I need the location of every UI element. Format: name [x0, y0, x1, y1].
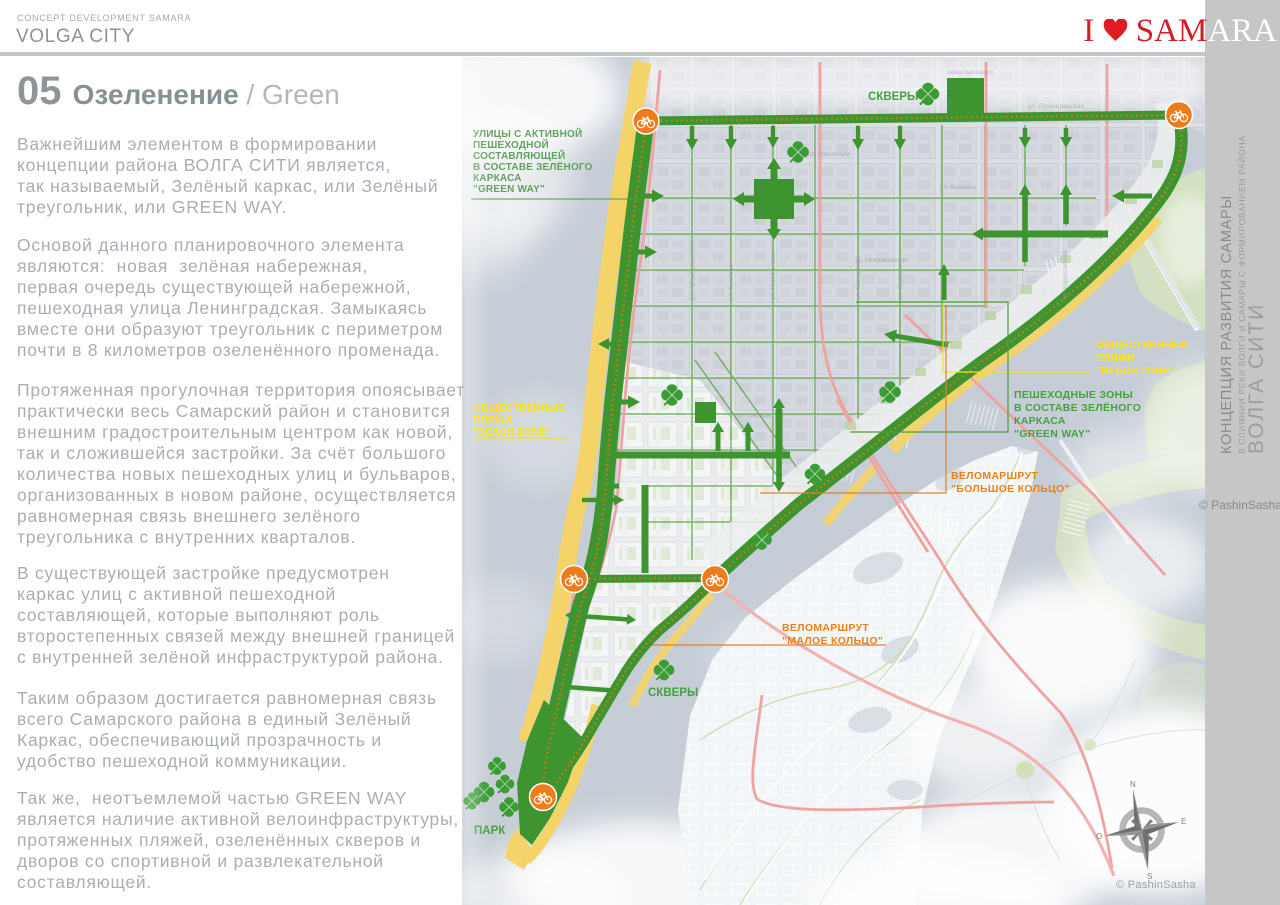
svg-text:ПЕШЕХОДНОЙ: ПЕШЕХОДНОЙ — [473, 138, 549, 151]
svg-text:"GREEN WAY": "GREEN WAY" — [1014, 428, 1090, 440]
svg-text:сквер Высоцкого: сквер Высоцкого — [947, 70, 994, 76]
svg-text:ОБЩЕСТВЕННЫЕ: ОБЩЕСТВЕННЫЕ — [473, 403, 565, 414]
svg-text:"МАЛОЕ КОЛЬЦО": "МАЛОЕ КОЛЬЦО" — [782, 635, 883, 647]
svg-text:пр. Коростелёва: пр. Коростелёва — [1062, 250, 1069, 300]
svg-text:УЛИЦЫ С АКТИВНОЙ: УЛИЦЫ С АКТИВНОЙ — [473, 127, 582, 140]
svg-text:ул. Никитинская: ул. Никитинская — [770, 251, 777, 300]
svg-text:ПЕШЕХОДНЫЕ ЗОНЫ: ПЕШЕХОДНЫЕ ЗОНЫ — [1014, 389, 1133, 401]
svg-text:ул. Ленинградская: ул. Ленинградская — [1028, 103, 1084, 110]
svg-text:ПАРК: ПАРК — [474, 825, 506, 837]
svg-text:"БОЛЬШОЕ КОЛЬЦО": "БОЛЬШОЕ КОЛЬЦО" — [951, 483, 1070, 495]
svg-text:ул. Арцыбушевская: ул. Арцыбушевская — [688, 240, 696, 300]
svg-text:ОБЩЕСТВЕННЫЕ: ОБЩЕСТВЕННЫЕ — [1096, 340, 1188, 351]
svg-text:"BEACH ZONE": "BEACH ZONE" — [473, 427, 551, 438]
svg-text:В СОСТАВЕ ЗЕЛЁНОГО: В СОСТАВЕ ЗЕЛЁНОГО — [473, 160, 593, 173]
svg-text:N: N — [1130, 780, 1136, 789]
svg-text:ПЛЯЖИ: ПЛЯЖИ — [473, 415, 512, 426]
svg-text:"BEACH ZONE": "BEACH ZONE" — [1096, 366, 1174, 377]
svg-text:КАРКАСА: КАРКАСА — [473, 173, 522, 184]
svg-text:E: E — [1181, 817, 1186, 826]
svg-text:ПЛЯЖИ: ПЛЯЖИ — [1096, 353, 1135, 364]
svg-text:ВЕЛОМАРШРУТ: ВЕЛОМАРШРУТ — [782, 622, 869, 634]
svg-text:ул. Садовая: ул. Садовая — [897, 263, 904, 300]
svg-text:ул. Хлебная: ул. Хлебная — [737, 414, 771, 420]
svg-text:СКВЕРЫ: СКВЕРЫ — [868, 91, 918, 103]
svg-text:В СОСТАВЕ ЗЕЛЁНОГО: В СОСТАВЕ ЗЕЛЁНОГО — [1014, 401, 1141, 414]
svg-text:СОСТАВЛЯЮЩЕЙ: СОСТАВЛЯЮЩЕЙ — [473, 149, 565, 162]
svg-text:СКВЕРЫ: СКВЕРЫ — [648, 687, 698, 699]
svg-text:"GREEN WAY": "GREEN WAY" — [473, 184, 545, 195]
svg-text:ВЕЛОМАРШРУТ: ВЕЛОМАРШРУТ — [951, 470, 1038, 482]
svg-text:O: O — [1096, 832, 1102, 841]
svg-text:КАРКАСА: КАРКАСА — [1014, 415, 1066, 427]
svg-text:пл. Революции: пл. Революции — [808, 152, 850, 158]
svg-text:ул. Венцека: ул. Венцека — [940, 184, 976, 191]
svg-text:ул. Некрасовская: ул. Некрасовская — [855, 257, 908, 264]
svg-text:ул. Буянова: ул. Буянова — [728, 264, 735, 300]
